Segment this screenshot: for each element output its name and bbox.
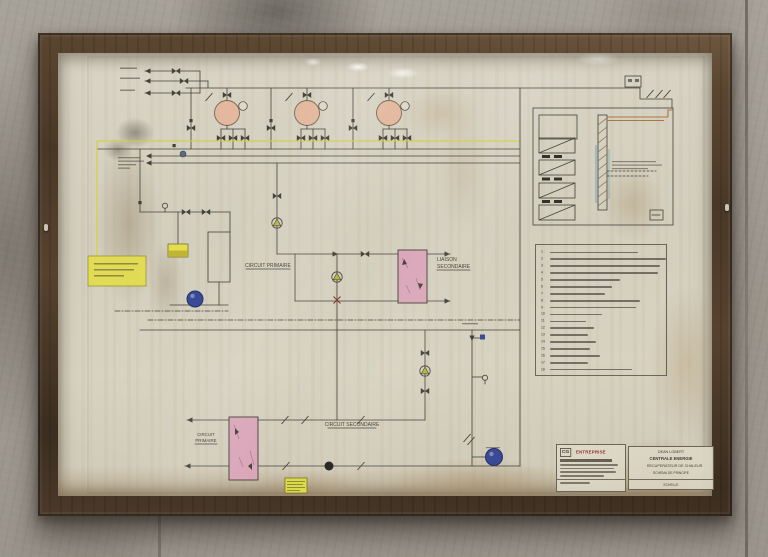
title-block-line4: SCHEMA DE PRINCIPE xyxy=(650,472,693,476)
label-circuit-lower-1: CIRCUIT xyxy=(197,432,215,437)
legend-item: 10 xyxy=(541,311,666,318)
legend-item-number: 13 xyxy=(541,333,546,336)
legend-item-number: 5 xyxy=(541,278,546,281)
label-circuit-lower-2: PRIMAIRE xyxy=(195,438,216,443)
legend-item-text-smudge xyxy=(550,293,605,295)
legend-item-number: 7 xyxy=(541,292,546,295)
legend-item-text-smudge xyxy=(550,307,636,309)
title-block-line3: RECUPERATEUR DE CHALEUR xyxy=(647,464,695,468)
schematic-board: CIRCUIT PRIMAIRE LIAISON SECONDAIRE xyxy=(58,53,712,496)
heat-exchanger-primary: LIAISON SECONDAIRE xyxy=(295,250,471,304)
legend-item: 17 xyxy=(541,359,666,366)
legend-item-text-smudge xyxy=(550,258,666,260)
frame-nail-right xyxy=(725,204,729,211)
legend-item-text-smudge xyxy=(550,341,596,343)
label-secondaire: SECONDAIRE xyxy=(437,264,471,270)
legend-item: 11 xyxy=(541,318,666,325)
legend-item-text-smudge xyxy=(550,300,640,302)
legend-item: 5 xyxy=(541,277,666,284)
legend-item: 8 xyxy=(541,297,666,304)
legend-item-number: 8 xyxy=(541,299,546,302)
contractor-name: ENTREPRISE xyxy=(576,450,606,454)
heat-exchanger-secondary xyxy=(229,417,258,480)
legend-item-text-smudge xyxy=(550,369,632,371)
boiler-unit xyxy=(187,88,249,149)
legend-item-number: 18 xyxy=(541,368,546,371)
label-circuit-secondaire: CIRCUIT SECONDAIRE xyxy=(325,422,380,428)
stamp-divider xyxy=(629,479,713,480)
boilers-group xyxy=(187,88,411,149)
boiler-unit xyxy=(349,88,411,149)
legend-item-number: 1 xyxy=(541,251,546,254)
contractor-address-smudge xyxy=(560,471,616,473)
wood-frame: CIRCUIT PRIMAIRE LIAISON SECONDAIRE xyxy=(38,33,732,516)
legend-item: 16 xyxy=(541,352,666,359)
legend-item: 4 xyxy=(541,270,666,277)
legend-item-number: 3 xyxy=(541,264,546,267)
yellow-note-box xyxy=(88,256,146,286)
legend-item-number: 2 xyxy=(541,258,546,261)
legend-item: 15 xyxy=(541,345,666,352)
legend-item-number: 10 xyxy=(541,313,546,316)
legend-item-text-smudge xyxy=(550,355,600,357)
contractor-footer-smudge xyxy=(560,482,590,484)
legend-item-number: 15 xyxy=(541,347,546,350)
contractor-logo: CG xyxy=(560,448,571,457)
frame-nail-left xyxy=(44,224,48,231)
photo-of-framed-schematic: CIRCUIT PRIMAIRE LIAISON SECONDAIRE xyxy=(0,0,768,557)
dash-separators xyxy=(115,311,520,330)
title-block-line2: CENTRALE ENERGIE xyxy=(644,457,699,462)
legend-item-number: 16 xyxy=(541,354,546,357)
legend-item-text-smudge xyxy=(550,252,638,254)
small-box-top-right xyxy=(625,76,641,87)
legend-item: 6 xyxy=(541,283,666,290)
primary-circuit: CIRCUIT PRIMAIRE xyxy=(245,163,398,420)
legend-item: 2 xyxy=(541,256,666,263)
legend-item: 1 xyxy=(541,249,666,256)
legend-item-number: 11 xyxy=(541,320,546,323)
heater-rows xyxy=(539,138,575,220)
legend-item-text-smudge xyxy=(550,327,594,329)
legend-item-text-smudge xyxy=(550,321,586,323)
contractor-address-smudge xyxy=(560,475,604,477)
boiler-unit xyxy=(267,88,329,149)
legend-item-number: 6 xyxy=(541,285,546,288)
contractor-address-smudge xyxy=(560,468,614,470)
contractor-address-smudge xyxy=(560,464,618,466)
contractor-stamp-header: CG ENTREPRISE xyxy=(560,447,622,458)
contractor-stamp: CG ENTREPRISE xyxy=(556,444,626,492)
legend-item-number: 17 xyxy=(541,361,546,364)
top-bus xyxy=(186,88,672,108)
legend-item-text-smudge xyxy=(550,348,590,350)
expansion-assembly xyxy=(138,149,230,307)
legend-item-number: 12 xyxy=(541,326,546,329)
bottom-circuit: CIRCUIT PRIMAIRE CIRCUIT SECONDAIRE xyxy=(185,416,520,493)
pump-sphere-left xyxy=(187,291,203,307)
detail-inset xyxy=(533,108,673,225)
duct-line xyxy=(607,117,668,121)
legend-item-number: 9 xyxy=(541,306,546,309)
legend-item: 18 xyxy=(541,366,666,373)
legend-item-text-smudge xyxy=(550,334,588,336)
legend-item: 9 xyxy=(541,304,666,311)
feed-lines xyxy=(120,68,208,97)
stamp-divider xyxy=(557,479,625,480)
legend-item: 12 xyxy=(541,325,666,332)
main-buses xyxy=(97,141,520,256)
pump-dot xyxy=(325,462,334,471)
label-liaison: LIAISON xyxy=(437,257,457,263)
lower-risers xyxy=(420,88,520,466)
legend-item-text-smudge xyxy=(550,362,588,364)
legend-item-text-smudge xyxy=(550,279,620,281)
label-circuit-primaire-upper: CIRCUIT PRIMAIRE xyxy=(245,263,291,269)
legend-item-text-smudge xyxy=(550,265,660,267)
pump-sphere-right xyxy=(486,449,503,466)
legend-item: 3 xyxy=(541,263,666,270)
wall-crack-line xyxy=(745,0,748,557)
legend-item-number: 4 xyxy=(541,271,546,274)
legend-item-text-smudge xyxy=(550,314,602,316)
legend-item: 13 xyxy=(541,332,666,339)
legend-item: 7 xyxy=(541,290,666,297)
legend-item-text-smudge xyxy=(550,286,612,288)
title-block-footer: ECHELLE xyxy=(650,484,693,488)
contractor-title-bar xyxy=(560,459,612,462)
legend-item: 14 xyxy=(541,339,666,346)
legend-box: 1 2 3 4 xyxy=(535,244,667,376)
title-block: DEAN LOBERT CENTRALE ENERGIE RECUPERATEU… xyxy=(628,446,714,490)
title-block-line1: DEAN LOBERT xyxy=(647,450,695,454)
legend-item-number: 14 xyxy=(541,340,546,343)
legend-item-text-smudge xyxy=(550,272,658,274)
